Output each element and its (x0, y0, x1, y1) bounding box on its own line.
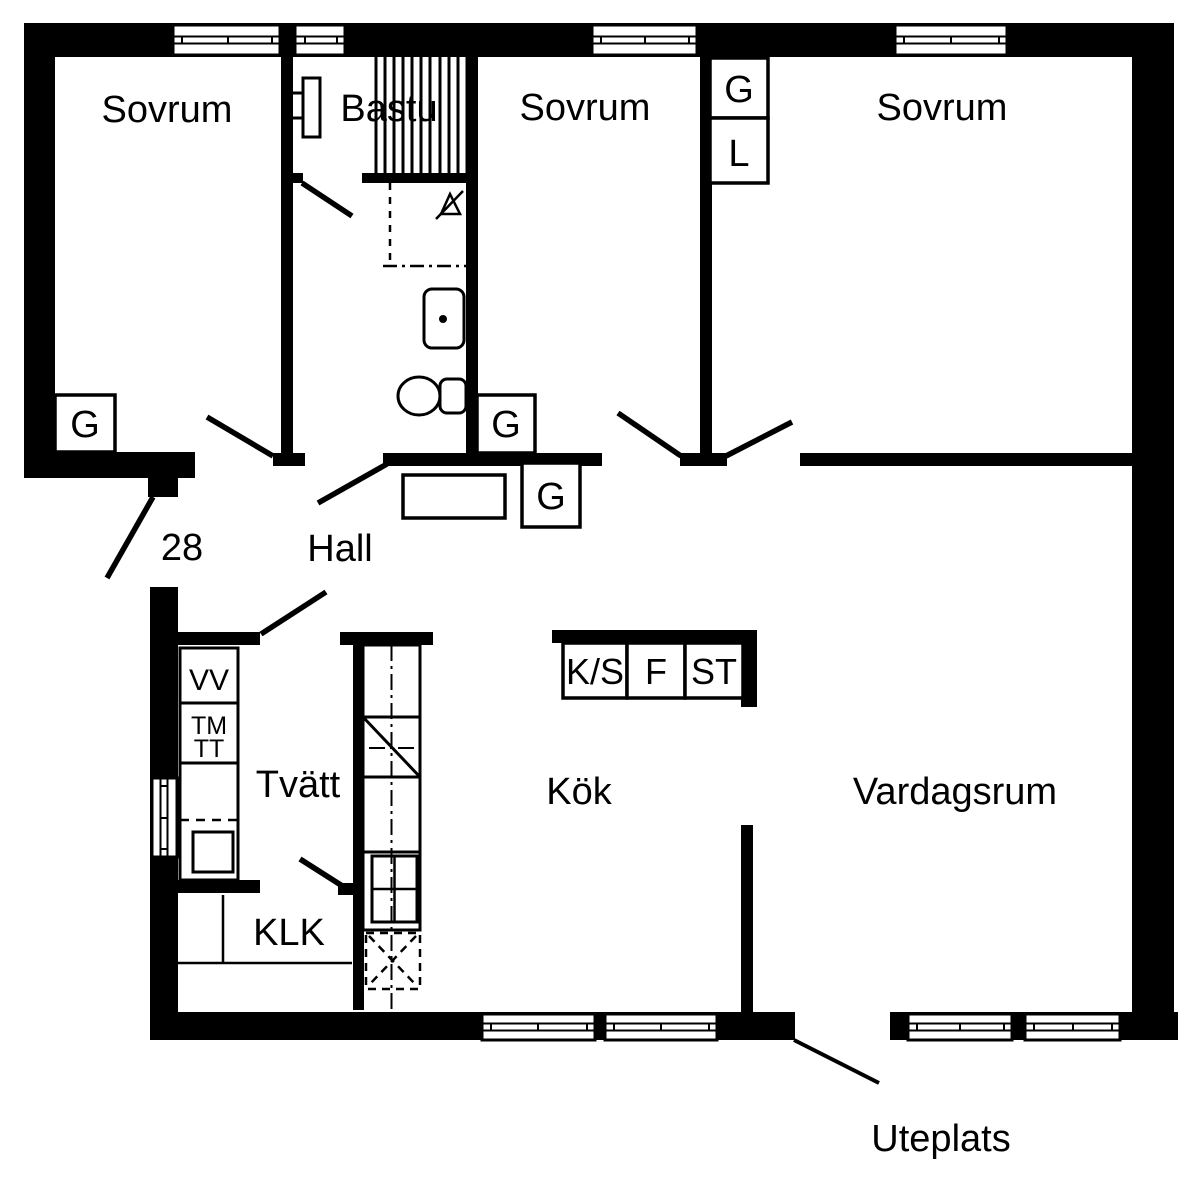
wardrobe-label-hall: G (536, 476, 566, 518)
bathroom-details (383, 183, 466, 415)
fridge-cooler-label: K/S (566, 651, 624, 692)
apartment-number-label: 28 (161, 527, 203, 569)
wall-stub-bedroom-doors (680, 453, 727, 466)
kitchen-counter (363, 645, 420, 1010)
patio-leader-line (794, 1040, 879, 1083)
wall-sauna-bench-bar (362, 173, 467, 183)
window-symbol-livingroom-2 (1025, 1014, 1120, 1040)
floor-plan-drawing: Sovrum Bastu Sovrum Sovrum Hall Tvätt KL… (0, 0, 1200, 1190)
room-label-laundry: Tvätt (256, 764, 341, 806)
tumble-dryer-label: TT (194, 735, 225, 763)
wall-bedroom-left-bottom (24, 452, 195, 478)
window-symbol-laundry (152, 778, 177, 857)
window-symbol-livingroom-1 (908, 1014, 1012, 1040)
wardrobe-label-bedroom-middle: G (491, 404, 521, 446)
sink-icon (424, 289, 464, 348)
wall-stub-sauna-door (293, 173, 303, 183)
wall-left-upper (24, 23, 55, 478)
door-swing-bathroom (318, 464, 387, 503)
wardrobe-label-bedroom-right: G (724, 69, 754, 111)
door-swing-entrance (107, 497, 153, 578)
cleaning-closet-label: ST (691, 651, 737, 692)
wall-laundry-top (178, 632, 260, 645)
stove-icon (372, 856, 417, 922)
linen-label-bedroom-right: L (728, 133, 749, 175)
laundry-sink-icon (193, 832, 233, 872)
door-swing-sauna (302, 183, 352, 216)
toilet-icon (398, 377, 466, 415)
window-symbol-kitchen-1 (482, 1014, 595, 1040)
room-label-sauna: Bastu (340, 88, 437, 130)
room-label-livingroom: Vardagsrum (853, 771, 1057, 813)
freezer-label: F (645, 651, 667, 692)
wall-kitchen-closets-top (552, 630, 757, 643)
door-swing-klk (300, 859, 344, 887)
water-heater-label: VV (189, 664, 229, 697)
wall-sauna-bath-left (281, 57, 293, 455)
window-symbol-bedroom-middle (592, 25, 697, 55)
dishwasher-space-icon (366, 933, 420, 989)
wall-kitchen-livingroom (741, 825, 753, 1012)
floor-plan: Sovrum Bastu Sovrum Sovrum Hall Tvätt KL… (0, 0, 1200, 1190)
room-label-hall: Hall (307, 528, 372, 570)
floor-drain-icon (436, 191, 463, 219)
labels: Sovrum Bastu Sovrum Sovrum Hall Tvätt KL… (70, 69, 1057, 1160)
wall-laundry-klk (178, 880, 260, 893)
door-swing-laundry (261, 592, 326, 634)
wall-right (1132, 23, 1174, 1040)
window-symbol-kitchen-2 (605, 1014, 717, 1040)
room-label-bedroom-middle: Sovrum (520, 87, 651, 129)
sauna-heater-icon (293, 78, 320, 137)
room-label-kitchen: Kök (546, 771, 612, 813)
door-swing-bedroom-middle (618, 413, 681, 456)
window-symbol-bedroom-right (895, 25, 1007, 55)
wardrobe-label-bedroom-left: G (70, 404, 100, 446)
room-label-bedroom-right: Sovrum (877, 87, 1008, 129)
wall-bedroom-right-bottom (800, 453, 1132, 466)
door-swing-bedroom-left (207, 417, 273, 456)
room-label-patio: Uteplats (871, 1118, 1010, 1160)
door-swing-bedroom-right (726, 422, 792, 456)
window-symbol-sauna (295, 25, 345, 55)
room-label-klk: KLK (253, 912, 325, 954)
window-symbol-bedroom-left (173, 25, 280, 55)
wall-entrance-step (148, 478, 178, 497)
wall-stub-bath-door (273, 453, 305, 466)
room-label-bedroom-left: Sovrum (102, 89, 233, 131)
hall-table (403, 475, 505, 518)
